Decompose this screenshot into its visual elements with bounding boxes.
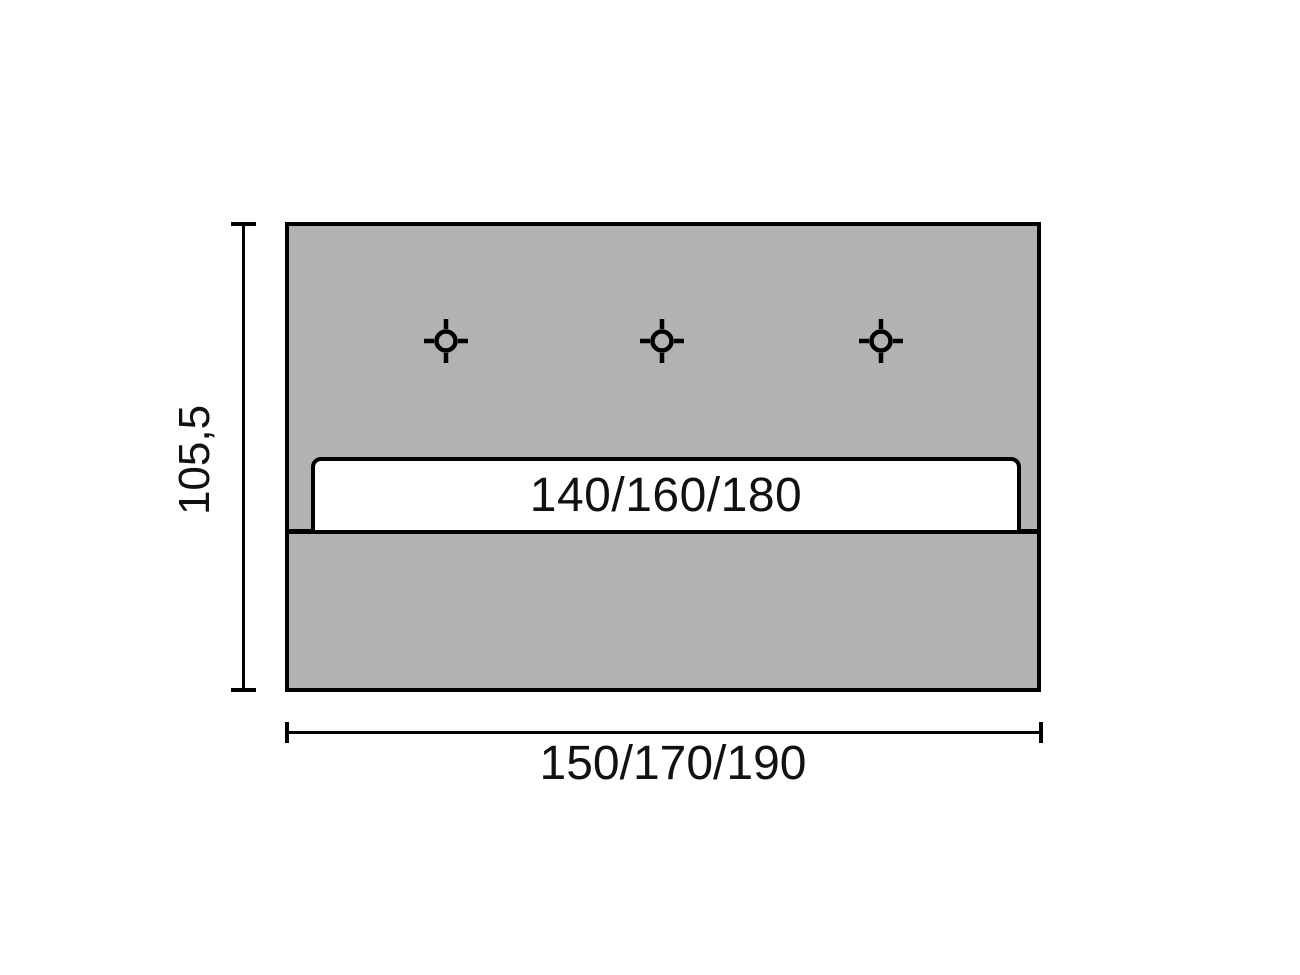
- crosshair-target-icon: [424, 319, 468, 363]
- width-dimension-label: 150/170/190: [540, 740, 807, 788]
- width-dimension-line: [287, 731, 1041, 734]
- height-dimension-label: 105,5: [173, 405, 217, 515]
- height-dimension-cap-bottom: [231, 688, 256, 692]
- crosshair-target-icon: [640, 319, 684, 363]
- slat-size-label: 140/160/180: [530, 472, 802, 520]
- crosshair-target-icon: [859, 319, 903, 363]
- height-dimension-cap-top: [231, 222, 256, 226]
- width-dimension-cap-right: [1039, 722, 1043, 743]
- height-dimension-line: [242, 223, 245, 691]
- dimension-diagram: 140/160/180 105,5 150/170/190: [0, 0, 1300, 975]
- slat-size-plate: 140/160/180: [311, 457, 1021, 534]
- width-dimension-cap-left: [285, 722, 289, 743]
